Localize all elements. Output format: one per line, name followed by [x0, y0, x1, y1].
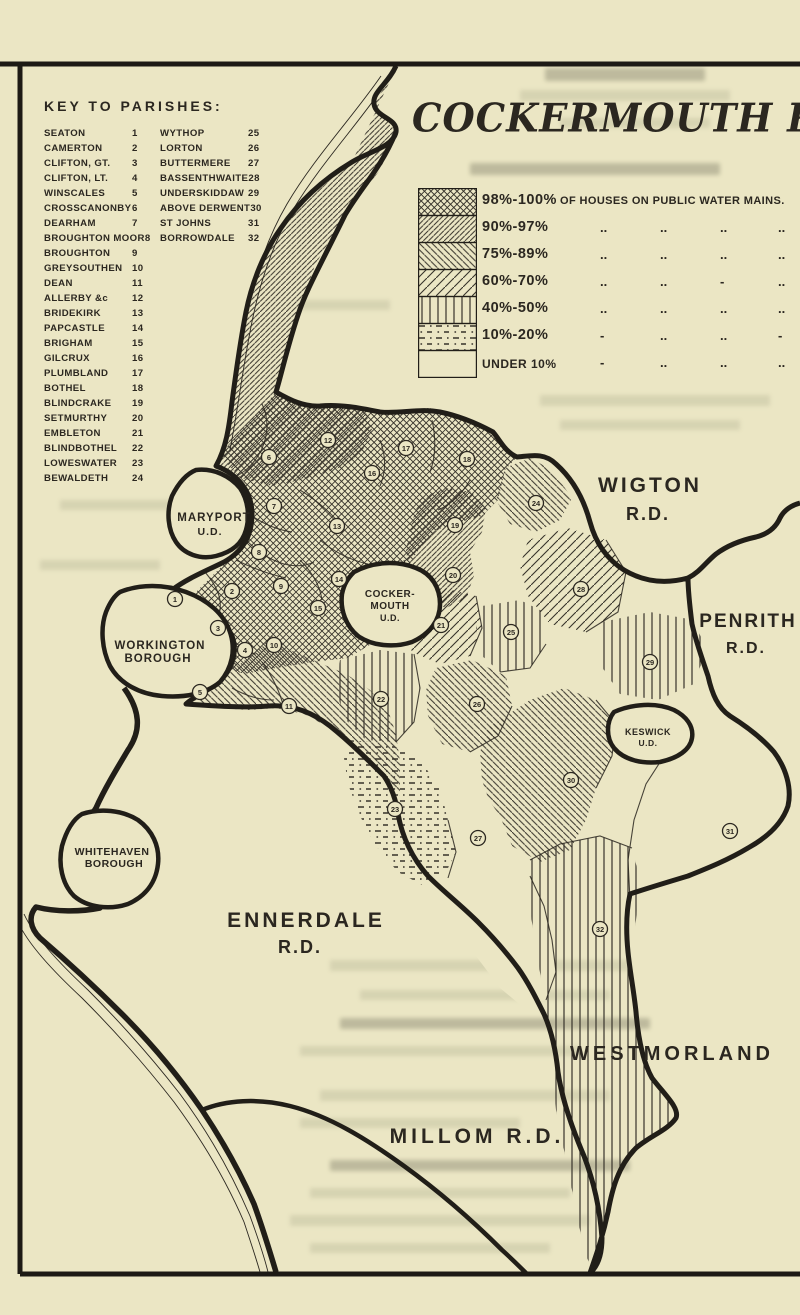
map-label-wigton: WIGTON [598, 474, 702, 497]
parish-marker-31: 31 [723, 824, 738, 839]
svg-text:11: 11 [285, 702, 293, 711]
parish-marker-19: 19 [448, 518, 463, 533]
parish-marker-12: 12 [321, 433, 336, 448]
svg-text:17: 17 [402, 444, 410, 453]
parish-marker-3: 3 [211, 621, 226, 636]
parish-marker-20: 20 [446, 568, 461, 583]
svg-text:19: 19 [451, 521, 459, 530]
parish-marker-29: 29 [643, 655, 658, 670]
parish-marker-8: 8 [252, 545, 267, 560]
map-label-mouth: MOUTH [370, 601, 409, 612]
parish-marker-32: 32 [593, 922, 608, 937]
svg-text:24: 24 [532, 499, 541, 508]
parish-marker-23: 23 [388, 802, 403, 817]
parish-marker-9: 9 [274, 579, 289, 594]
map-label-cocker: COCKER- [365, 589, 415, 600]
svg-text:30: 30 [567, 776, 575, 785]
svg-text:28: 28 [577, 585, 585, 594]
parish-marker-17: 17 [399, 441, 414, 456]
parish-marker-14: 14 [332, 572, 347, 587]
svg-text:1: 1 [173, 595, 177, 604]
map-label-keswick: KESWICK [625, 727, 671, 737]
svg-text:12: 12 [324, 436, 332, 445]
parish-marker-7: 7 [267, 499, 282, 514]
map-label-whitehaven: WHITEHAVEN [75, 846, 150, 858]
svg-text:3: 3 [216, 624, 220, 633]
map-label-r-d: R.D. [278, 937, 322, 957]
svg-text:9: 9 [279, 582, 283, 591]
svg-text:22: 22 [377, 695, 385, 704]
svg-text:6: 6 [267, 453, 271, 462]
parish-marker-4: 4 [238, 643, 253, 658]
parish-marker-1: 1 [168, 592, 183, 607]
svg-text:5: 5 [198, 688, 202, 697]
svg-text:32: 32 [596, 925, 604, 934]
map-label-r-d: R.D. [726, 640, 766, 657]
map-label-u-d: U.D. [198, 526, 223, 538]
svg-text:27: 27 [474, 834, 482, 843]
svg-text:10: 10 [270, 641, 278, 650]
parish-marker-25: 25 [504, 625, 519, 640]
svg-text:14: 14 [335, 575, 344, 584]
scanned-map-page: KEY TO PARISHES: SEATON1CAMERTON2CLIFTON… [0, 0, 800, 1315]
parish-marker-6: 6 [262, 450, 277, 465]
map-label-r-d: R.D. [626, 504, 670, 524]
svg-text:2: 2 [230, 587, 234, 596]
map-label-u-d: U.D. [639, 738, 658, 748]
svg-text:7: 7 [272, 502, 276, 511]
parish-marker-30: 30 [564, 773, 579, 788]
map-label-millom-r-d: MILLOM R.D. [390, 1125, 565, 1148]
parish-marker-26: 26 [470, 697, 485, 712]
parish-marker-27: 27 [471, 831, 486, 846]
map-label-borough: BOROUGH [124, 653, 191, 665]
svg-text:25: 25 [507, 628, 515, 637]
parish-marker-15: 15 [311, 601, 326, 616]
parish-marker-5: 5 [193, 685, 208, 700]
map-label-u-d: U.D. [380, 613, 400, 623]
svg-text:8: 8 [257, 548, 261, 557]
parish-marker-16: 16 [365, 466, 380, 481]
map-label-ennerdale: ENNERDALE [227, 909, 385, 932]
parish-map: WIGTONR.D.PENRITHR.D.WESTMORLANDENNERDAL… [0, 0, 800, 1315]
svg-text:13: 13 [333, 522, 341, 531]
map-label-penrith: PENRITH [699, 611, 796, 632]
map-label-maryport: MARYPORT [177, 512, 250, 524]
svg-text:26: 26 [473, 700, 481, 709]
map-label-westmorland: WESTMORLAND [570, 1043, 774, 1065]
parish-marker-28: 28 [574, 582, 589, 597]
map-label-borough: BOROUGH [85, 858, 143, 870]
parish-marker-21: 21 [434, 618, 449, 633]
parish-marker-2: 2 [225, 584, 240, 599]
parish-marker-13: 13 [330, 519, 345, 534]
svg-text:15: 15 [314, 604, 322, 613]
svg-text:31: 31 [726, 827, 734, 836]
map-label-workington: WORKINGTON [115, 640, 206, 652]
parish-marker-18: 18 [460, 452, 475, 467]
parish-marker-11: 11 [282, 699, 297, 714]
svg-text:29: 29 [646, 658, 654, 667]
parish-marker-24: 24 [529, 496, 544, 511]
parish-marker-10: 10 [267, 638, 282, 653]
svg-text:23: 23 [391, 805, 399, 814]
svg-text:16: 16 [368, 469, 376, 478]
svg-text:20: 20 [449, 571, 457, 580]
parish-marker-22: 22 [374, 692, 389, 707]
svg-text:21: 21 [437, 621, 445, 630]
svg-text:18: 18 [463, 455, 471, 464]
